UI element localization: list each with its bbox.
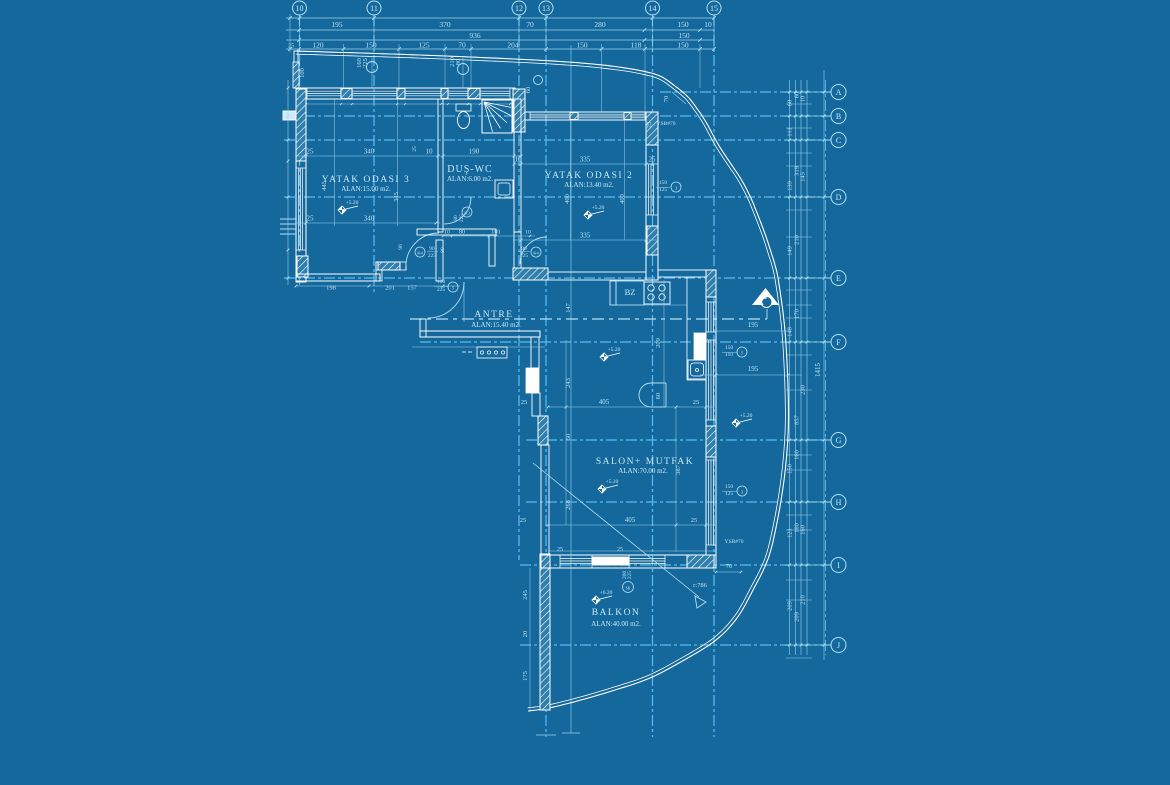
svg-text:225: 225 [520, 253, 529, 259]
svg-text:405: 405 [625, 516, 636, 524]
svg-text:225: 225 [428, 253, 437, 259]
svg-text:10: 10 [704, 20, 712, 29]
svg-text:YSB#70: YSB#70 [725, 539, 744, 545]
svg-text:400: 400 [564, 194, 571, 204]
svg-text:204: 204 [507, 41, 519, 50]
svg-text:25: 25 [646, 122, 653, 129]
svg-text:90: 90 [398, 244, 404, 250]
svg-text:370: 370 [439, 20, 451, 29]
svg-text:225: 225 [459, 214, 465, 223]
svg-text:268: 268 [565, 500, 572, 510]
svg-text:160: 160 [794, 450, 801, 460]
svg-text:ALAN:70.00 m2.: ALAN:70.00 m2. [618, 467, 668, 475]
svg-text:10: 10 [515, 156, 523, 164]
svg-text:+5.20: +5.20 [608, 347, 621, 353]
svg-text:K3: K3 [464, 211, 470, 216]
svg-text:125: 125 [659, 187, 668, 193]
svg-text:15: 15 [710, 4, 718, 13]
svg-text:SALON+ MUTFAK: SALON+ MUTFAK [596, 457, 694, 467]
svg-text:195: 195 [748, 365, 759, 373]
svg-text:E: E [836, 274, 841, 283]
svg-text:195: 195 [748, 321, 759, 329]
svg-text:150: 150 [576, 41, 588, 50]
svg-text:230: 230 [800, 385, 807, 395]
svg-text:209: 209 [794, 612, 801, 622]
svg-text:400: 400 [619, 194, 626, 204]
svg-text:70: 70 [663, 96, 670, 103]
svg-text:1415: 1415 [814, 363, 822, 378]
svg-text:10: 10 [800, 96, 807, 103]
svg-text:190: 190 [469, 148, 480, 156]
svg-text:J: J [837, 641, 840, 650]
svg-text:125: 125 [418, 41, 430, 50]
svg-text:ALAN:13.40 m2.: ALAN:13.40 m2. [564, 181, 614, 189]
svg-text:175: 175 [522, 671, 529, 681]
svg-text:YSB#70: YSB#70 [657, 121, 676, 127]
svg-text:+5.20: +5.20 [346, 200, 359, 206]
svg-text:60: 60 [787, 100, 794, 107]
svg-text:25: 25 [520, 517, 527, 524]
svg-text:ANTRE: ANTRE [474, 310, 513, 320]
svg-text:857: 857 [794, 414, 801, 425]
svg-text:10: 10 [296, 4, 304, 13]
svg-text:ALAN:40.00 m2.: ALAN:40.00 m2. [591, 620, 641, 628]
svg-text:157: 157 [407, 285, 418, 292]
svg-text:335: 335 [580, 156, 591, 164]
svg-text:YATAK ODASI 2: YATAK ODASI 2 [545, 171, 633, 181]
svg-text:195: 195 [331, 20, 343, 29]
svg-text:150: 150 [365, 41, 377, 50]
svg-text:F: F [836, 338, 841, 347]
svg-text:110: 110 [725, 352, 733, 358]
svg-text:r:786: r:786 [693, 582, 707, 589]
svg-text:60: 60 [655, 393, 662, 400]
svg-text:13: 13 [542, 4, 550, 13]
svg-text:150: 150 [677, 20, 689, 29]
svg-text:60: 60 [525, 87, 532, 94]
svg-text:139: 139 [787, 181, 794, 191]
svg-text:170: 170 [794, 309, 801, 319]
svg-text:147: 147 [565, 302, 572, 313]
svg-text:25: 25 [521, 399, 528, 406]
svg-text:225: 225 [437, 287, 446, 293]
svg-text:25: 25 [691, 517, 698, 524]
svg-text:K4: K4 [417, 251, 423, 256]
svg-text:YATAK ODASI 3: YATAK ODASI 3 [322, 175, 410, 185]
svg-text:90: 90 [440, 247, 446, 253]
svg-text:243: 243 [565, 378, 572, 388]
svg-text:ALAN:6.00 m2.: ALAN:6.00 m2. [447, 175, 493, 183]
svg-text:936: 936 [469, 31, 481, 40]
svg-text:335: 335 [580, 232, 591, 240]
svg-text:25: 25 [557, 547, 563, 553]
svg-text:340: 340 [364, 148, 375, 156]
svg-text:210: 210 [794, 235, 801, 245]
svg-text:K4: K4 [533, 251, 539, 256]
svg-text:70: 70 [526, 20, 534, 29]
svg-text:209: 209 [787, 601, 794, 611]
svg-text:70: 70 [726, 563, 733, 570]
svg-text:148: 148 [787, 327, 794, 337]
svg-text:+6.20: +6.20 [600, 590, 613, 596]
svg-text:BALKON: BALKON [592, 608, 641, 618]
svg-text:210: 210 [800, 595, 807, 605]
svg-text:150: 150 [659, 180, 668, 186]
svg-text:ALAN:15.00 m2.: ALAN:15.00 m2. [341, 185, 391, 193]
svg-text:25: 25 [649, 156, 657, 164]
svg-text:A: A [836, 88, 842, 97]
svg-text:10: 10 [444, 230, 450, 236]
svg-text:121: 121 [787, 528, 794, 538]
svg-text:225: 225 [627, 571, 633, 580]
svg-text:D: D [836, 193, 842, 202]
svg-text:C: C [836, 136, 841, 145]
svg-text:10: 10 [426, 148, 434, 156]
svg-text:+5.20: +5.20 [606, 479, 619, 485]
svg-text:10: 10 [525, 230, 531, 236]
svg-text:25: 25 [307, 148, 315, 156]
svg-text:198: 198 [326, 285, 336, 292]
svg-text:90: 90 [429, 246, 435, 252]
svg-text:25: 25 [693, 399, 700, 406]
svg-text:150: 150 [677, 41, 689, 50]
svg-text:14: 14 [649, 4, 657, 13]
svg-text:80: 80 [455, 59, 462, 66]
svg-text:118: 118 [631, 41, 642, 50]
svg-text:I: I [837, 561, 840, 570]
svg-text:11: 11 [370, 4, 378, 13]
svg-text:ALAN:15.40 m2.: ALAN:15.40 m2. [471, 321, 521, 329]
svg-text:BZ: BZ [625, 287, 636, 297]
svg-text:149: 149 [787, 246, 794, 256]
svg-text:225: 225 [362, 58, 369, 68]
svg-text:50: 50 [565, 434, 572, 441]
svg-text:111: 111 [787, 127, 794, 136]
svg-text:H: H [836, 498, 842, 507]
svg-text:145: 145 [800, 172, 807, 182]
svg-text:B: B [836, 112, 841, 121]
svg-text:340: 340 [364, 215, 375, 223]
svg-text:160: 160 [800, 525, 807, 535]
svg-text:100: 100 [299, 68, 306, 78]
svg-text:25: 25 [617, 547, 623, 553]
svg-text:DUŞ-WC: DUŞ-WC [447, 164, 492, 175]
svg-text:25: 25 [412, 146, 418, 152]
svg-text:G: G [836, 436, 842, 445]
svg-text:125: 125 [725, 491, 734, 497]
svg-text:150: 150 [787, 464, 794, 474]
svg-text:150: 150 [725, 484, 734, 490]
svg-text:201: 201 [385, 285, 395, 292]
svg-text:25: 25 [307, 215, 315, 223]
svg-text:20: 20 [522, 631, 529, 638]
svg-text:150: 150 [725, 345, 734, 351]
svg-text:150: 150 [678, 31, 690, 40]
svg-text:101: 101 [491, 229, 501, 236]
svg-text:12: 12 [515, 4, 523, 13]
svg-text:280: 280 [594, 20, 606, 29]
svg-text:90: 90 [521, 246, 527, 252]
svg-text:209: 209 [655, 338, 662, 348]
svg-text:70: 70 [458, 41, 466, 50]
svg-text:SK: SK [625, 586, 630, 591]
svg-text:405: 405 [599, 398, 610, 406]
svg-text:+5.20: +5.20 [592, 205, 605, 211]
svg-text:+5.20: +5.20 [740, 413, 753, 419]
svg-text:245: 245 [522, 590, 529, 600]
svg-text:80: 80 [459, 230, 465, 236]
svg-text:100: 100 [437, 279, 446, 285]
svg-text:120: 120 [312, 41, 324, 50]
svg-text:345: 345 [393, 192, 400, 202]
